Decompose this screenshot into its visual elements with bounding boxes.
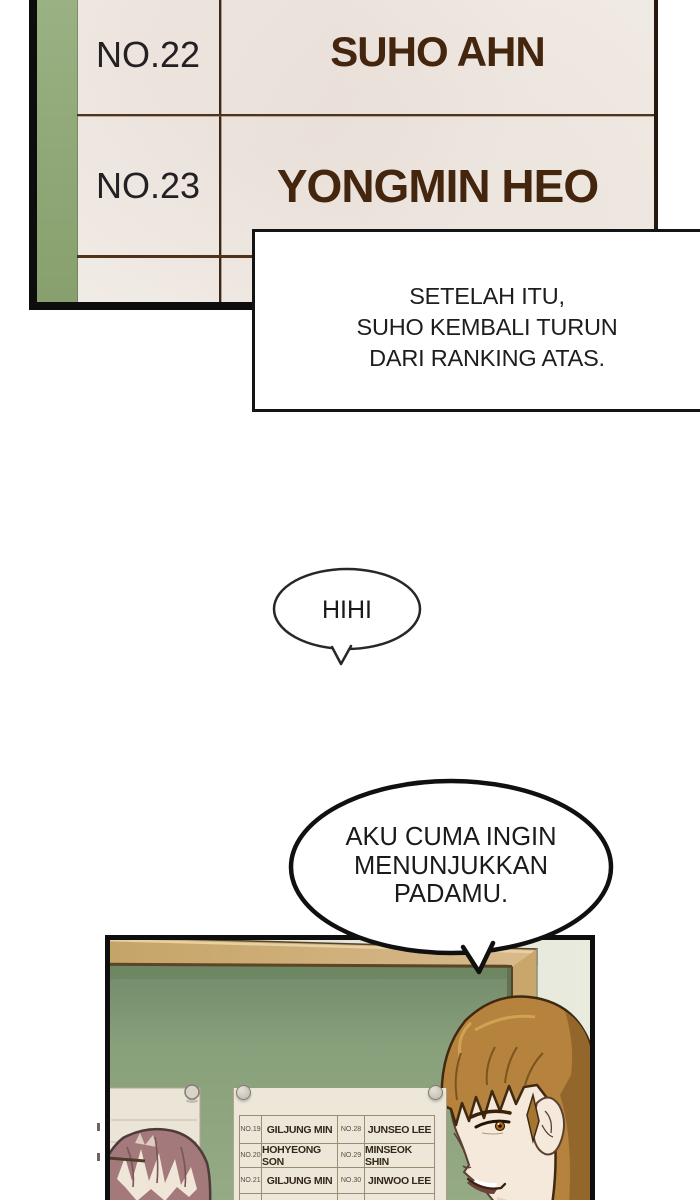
rank-number-cell: NO.23 [77, 117, 219, 255]
sheet-border-left [29, 0, 37, 310]
comic-page: NO.22 SUHO AHN NO.23 YONGMIN HEO SETELAH… [0, 0, 700, 1200]
narration-line: SUHO KEMBALI TURUN [255, 312, 700, 343]
speech-line: PADAMU. [295, 880, 607, 909]
rank-name-cell: SUHO AHN [221, 0, 654, 104]
narration-box: SETELAH ITU, SUHO KEMBALI TURUN DARI RAN… [252, 229, 700, 412]
speech-line: AKU CUMA INGIN [295, 823, 607, 852]
ranking-sheet-green-strip [37, 0, 78, 302]
speech-text-small: HIHI [274, 596, 420, 625]
speech-text-large: AKU CUMA INGIN MENUNJUKKAN PADAMU. [295, 823, 607, 909]
bubble-tail [332, 646, 351, 664]
sheet-row-divider-1 [77, 114, 654, 116]
rank-number-cell: NO.22 [77, 0, 219, 110]
bubble-tail [463, 943, 493, 972]
narration-line: SETELAH ITU, [255, 281, 700, 312]
speech-line: MENUNJUKKAN [295, 852, 607, 881]
edge-artifact [97, 1123, 100, 1131]
narration-line: DARI RANKING ATAS. [255, 343, 700, 374]
edge-artifact [97, 1153, 100, 1161]
